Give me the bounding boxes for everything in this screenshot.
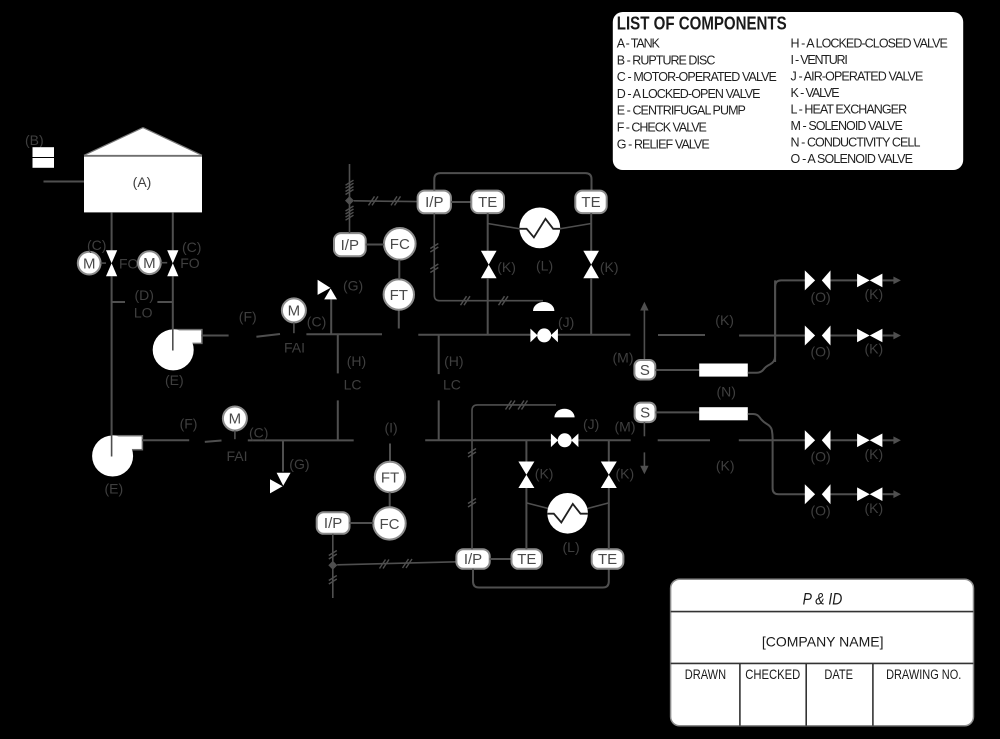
svg-text:(K): (K)	[715, 312, 734, 328]
svg-text:(O): (O)	[811, 449, 831, 465]
svg-text:(K): (K)	[600, 259, 619, 275]
svg-text:M: M	[288, 303, 301, 320]
svg-text:TE: TE	[478, 194, 497, 211]
svg-text:M: M	[143, 255, 156, 272]
svg-text:G - RELIEF VALVE: G - RELIEF VALVE	[617, 137, 710, 151]
svg-text:M - SOLENOID VALVE: M - SOLENOID VALVE	[791, 119, 903, 133]
svg-text:(E): (E)	[105, 481, 124, 497]
svg-text:(O): (O)	[811, 289, 831, 305]
svg-text:P & ID: P & ID	[803, 590, 843, 609]
svg-text:FC: FC	[390, 236, 410, 253]
svg-text:H - A LOCKED-CLOSED VALVE: H - A LOCKED-CLOSED VALVE	[791, 37, 948, 51]
svg-text:DATE: DATE	[824, 667, 853, 683]
svg-text:I/P: I/P	[425, 194, 443, 211]
svg-text:FAI: FAI	[284, 339, 305, 355]
svg-text:M: M	[229, 411, 242, 428]
svg-text:(L): (L)	[563, 539, 580, 555]
svg-text:(D): (D)	[135, 287, 154, 303]
svg-text:N - CONDUCTIVITY CELL: N - CONDUCTIVITY CELL	[791, 136, 921, 150]
svg-text:O - A SOLENOID VALVE: O - A SOLENOID VALVE	[791, 152, 914, 166]
svg-text:(K): (K)	[716, 458, 735, 474]
svg-text:(K): (K)	[865, 341, 884, 357]
svg-text:(L): (L)	[536, 258, 553, 274]
svg-text:FO: FO	[180, 255, 200, 271]
svg-text:(O): (O)	[811, 503, 831, 519]
svg-text:(K): (K)	[535, 466, 554, 482]
svg-text:A - TANK: A - TANK	[617, 37, 661, 51]
svg-text:J - AIR-OPERATED VALVE: J - AIR-OPERATED VALVE	[791, 70, 924, 84]
svg-text:(B): (B)	[25, 132, 44, 148]
svg-text:(M): (M)	[613, 350, 634, 366]
svg-text:K - VALVE: K - VALVE	[791, 86, 840, 100]
svg-text:(K): (K)	[865, 446, 884, 462]
svg-text:TE: TE	[598, 551, 617, 568]
svg-text:(N): (N)	[717, 384, 736, 400]
svg-text:FO: FO	[119, 255, 139, 271]
svg-text:LIST OF COMPONENTS: LIST OF COMPONENTS	[617, 13, 787, 34]
svg-text:(J): (J)	[583, 416, 599, 432]
svg-text:DRAWING NO.: DRAWING NO.	[886, 667, 961, 683]
svg-text:(K): (K)	[497, 259, 516, 275]
svg-text:I - VENTURI: I - VENTURI	[791, 53, 848, 67]
svg-text:M: M	[83, 255, 96, 272]
svg-text:L - HEAT EXCHANGER: L - HEAT EXCHANGER	[791, 103, 908, 117]
svg-text:(C): (C)	[87, 237, 106, 253]
svg-text:FC: FC	[380, 516, 400, 533]
svg-text:TE: TE	[517, 551, 536, 568]
svg-text:(K): (K)	[865, 286, 884, 302]
svg-text:FT: FT	[390, 287, 408, 304]
svg-text:(M): (M)	[615, 419, 636, 435]
svg-text:(J): (J)	[558, 314, 574, 330]
svg-text:LC: LC	[443, 377, 461, 393]
svg-text:(A): (A)	[133, 174, 152, 190]
svg-text:TE: TE	[581, 194, 600, 211]
svg-text:(C): (C)	[307, 314, 326, 330]
svg-text:(F): (F)	[239, 309, 257, 325]
svg-text:(H): (H)	[347, 353, 366, 369]
svg-text:S: S	[640, 405, 650, 422]
svg-text:(K): (K)	[865, 500, 884, 516]
svg-text:I/P: I/P	[464, 551, 482, 568]
svg-text:FAI: FAI	[227, 448, 248, 464]
svg-text:(C): (C)	[249, 425, 268, 441]
svg-text:FT: FT	[381, 469, 399, 486]
svg-text:(K): (K)	[616, 466, 635, 482]
svg-text:DRAWN: DRAWN	[685, 667, 726, 683]
svg-text:LO: LO	[134, 305, 153, 321]
svg-text:(G): (G)	[343, 278, 363, 294]
svg-text:(F): (F)	[180, 416, 198, 432]
svg-text:I/P: I/P	[341, 237, 359, 254]
svg-text:I/P: I/P	[324, 515, 342, 532]
svg-text:LC: LC	[344, 377, 362, 393]
svg-text:(E): (E)	[165, 372, 184, 388]
svg-text:C - MOTOR-OPERATED VALVE: C - MOTOR-OPERATED VALVE	[617, 70, 777, 84]
svg-text:(G): (G)	[289, 456, 309, 472]
svg-text:F - CHECK VALVE: F - CHECK VALVE	[617, 121, 707, 135]
svg-text:E - CENTRIFUGAL PUMP: E - CENTRIFUGAL PUMP	[617, 104, 746, 118]
svg-text:(H): (H)	[444, 353, 463, 369]
svg-text:B - RUPTURE DISC: B - RUPTURE DISC	[617, 53, 716, 67]
svg-text:(C): (C)	[182, 239, 201, 255]
svg-text:S: S	[640, 362, 650, 379]
svg-text:(O): (O)	[811, 344, 831, 360]
svg-text:D - A LOCKED-OPEN VALVE: D - A LOCKED-OPEN VALVE	[617, 87, 761, 101]
svg-text:(I): (I)	[385, 420, 398, 436]
svg-text:[COMPANY NAME]: [COMPANY NAME]	[762, 633, 884, 649]
svg-text:CHECKED: CHECKED	[745, 667, 800, 682]
